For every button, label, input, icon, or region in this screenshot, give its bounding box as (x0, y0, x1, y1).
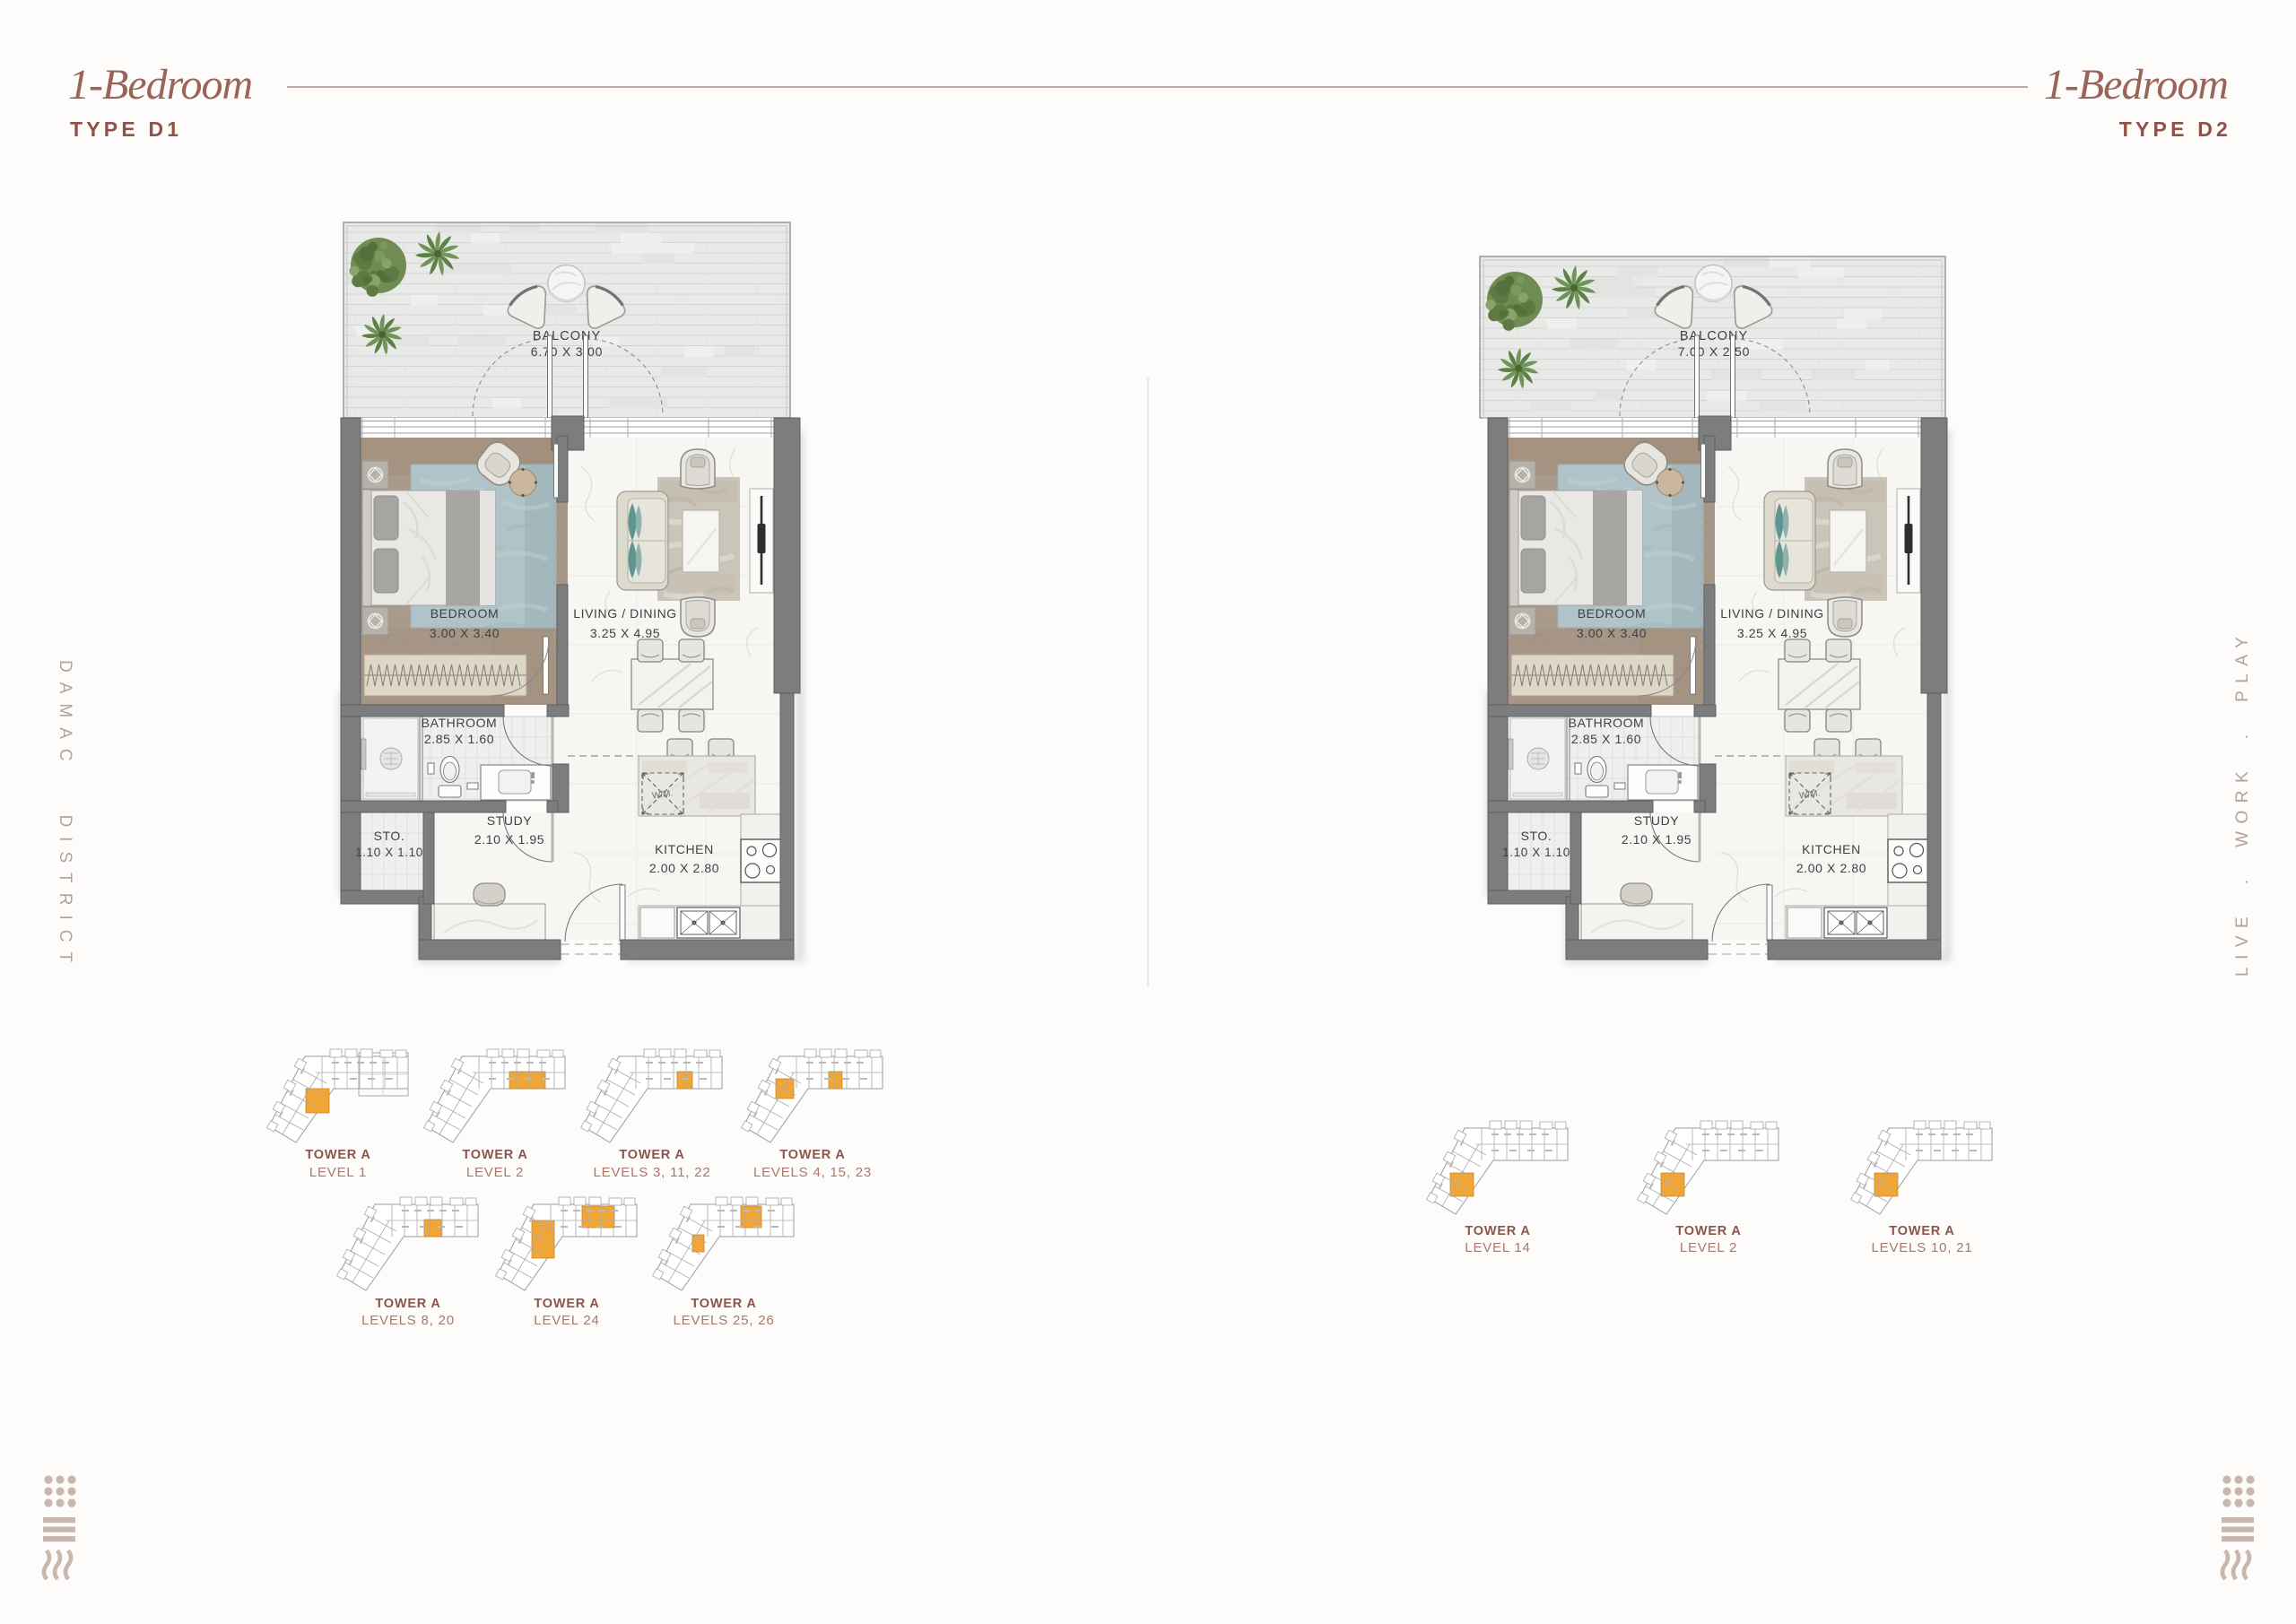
svg-text:BEDROOM: BEDROOM (430, 606, 500, 621)
svg-text:1-Bedroom: 1-Bedroom (2044, 61, 2228, 109)
svg-text:1.10 X 1.10: 1.10 X 1.10 (1502, 846, 1570, 859)
svg-text:TOWER A: TOWER A (1465, 1224, 1530, 1238)
svg-text:TYPE D1: TYPE D1 (70, 117, 182, 141)
svg-text:LIVE . WORK . PLAY: LIVE . WORK . PLAY (2233, 630, 2252, 977)
svg-text:TOWER A: TOWER A (691, 1297, 756, 1311)
svg-text:KITCHEN: KITCHEN (1802, 842, 1861, 856)
svg-text:LIVING / DINING: LIVING / DINING (1720, 606, 1824, 621)
svg-text:TOWER A: TOWER A (534, 1297, 599, 1311)
svg-text:LEVELS 25, 26: LEVELS 25, 26 (674, 1313, 775, 1328)
svg-text:STO.: STO. (1521, 829, 1552, 843)
svg-text:3.00 X 3.40: 3.00 X 3.40 (1577, 626, 1647, 640)
svg-text:STUDY: STUDY (1634, 813, 1680, 828)
svg-text:TOWER A: TOWER A (462, 1148, 527, 1162)
svg-text:1.10 X 1.10: 1.10 X 1.10 (355, 846, 423, 859)
svg-text:2.10 X 1.95: 2.10 X 1.95 (474, 832, 544, 847)
svg-text:DAMAC DISTRICT: DAMAC DISTRICT (56, 660, 74, 972)
svg-text:TOWER A: TOWER A (305, 1148, 370, 1162)
svg-text:7.00 X 2.50: 7.00 X 2.50 (1678, 344, 1750, 359)
svg-text:3.25 X 4.95: 3.25 X 4.95 (590, 626, 660, 640)
svg-text:LEVELS 3, 11, 22: LEVELS 3, 11, 22 (594, 1165, 711, 1180)
svg-text:6.70 X 3.00: 6.70 X 3.00 (531, 344, 603, 359)
svg-text:LEVELS 8, 20: LEVELS 8, 20 (361, 1313, 455, 1328)
svg-text:2.10 X 1.95: 2.10 X 1.95 (1622, 832, 1692, 847)
svg-text:2.00 X 2.80: 2.00 X 2.80 (649, 861, 719, 875)
svg-text:BALCONY: BALCONY (1680, 329, 1748, 343)
svg-text:BEDROOM: BEDROOM (1578, 606, 1647, 621)
svg-text:2.85 X 1.60: 2.85 X 1.60 (1571, 732, 1641, 746)
svg-text:TOWER A: TOWER A (619, 1148, 684, 1162)
svg-text:3.25 X 4.95: 3.25 X 4.95 (1737, 626, 1807, 640)
svg-text:TOWER A: TOWER A (1889, 1224, 1954, 1238)
svg-text:LEVELS 10, 21: LEVELS 10, 21 (1872, 1240, 1973, 1255)
svg-text:TOWER A: TOWER A (779, 1148, 845, 1162)
svg-text:LEVELS 4, 15, 23: LEVELS 4, 15, 23 (753, 1165, 872, 1180)
svg-text:LEVEL 24: LEVEL 24 (534, 1313, 599, 1328)
svg-text:LEVEL 14: LEVEL 14 (1465, 1240, 1530, 1255)
svg-text:TOWER A: TOWER A (375, 1297, 440, 1311)
svg-text:STUDY: STUDY (487, 813, 533, 828)
svg-text:1-Bedroom: 1-Bedroom (68, 61, 252, 109)
svg-text:STO.: STO. (374, 829, 405, 843)
svg-text:TYPE D2: TYPE D2 (2119, 117, 2231, 141)
svg-text:LIVING / DINING: LIVING / DINING (573, 606, 677, 621)
svg-text:3.00 X 3.40: 3.00 X 3.40 (430, 626, 500, 640)
svg-text:LEVEL 2: LEVEL 2 (1680, 1240, 1737, 1255)
svg-text:BATHROOM: BATHROOM (422, 716, 498, 730)
svg-text:LEVEL 2: LEVEL 2 (466, 1165, 524, 1180)
svg-text:2.85 X 1.60: 2.85 X 1.60 (424, 732, 494, 746)
svg-text:BATHROOM: BATHROOM (1569, 716, 1645, 730)
svg-text:TOWER A: TOWER A (1675, 1224, 1741, 1238)
svg-text:LEVEL 1: LEVEL 1 (309, 1165, 367, 1180)
svg-text:2.00 X 2.80: 2.00 X 2.80 (1796, 861, 1866, 875)
svg-text:KITCHEN: KITCHEN (655, 842, 714, 856)
svg-text:BALCONY: BALCONY (533, 329, 601, 343)
